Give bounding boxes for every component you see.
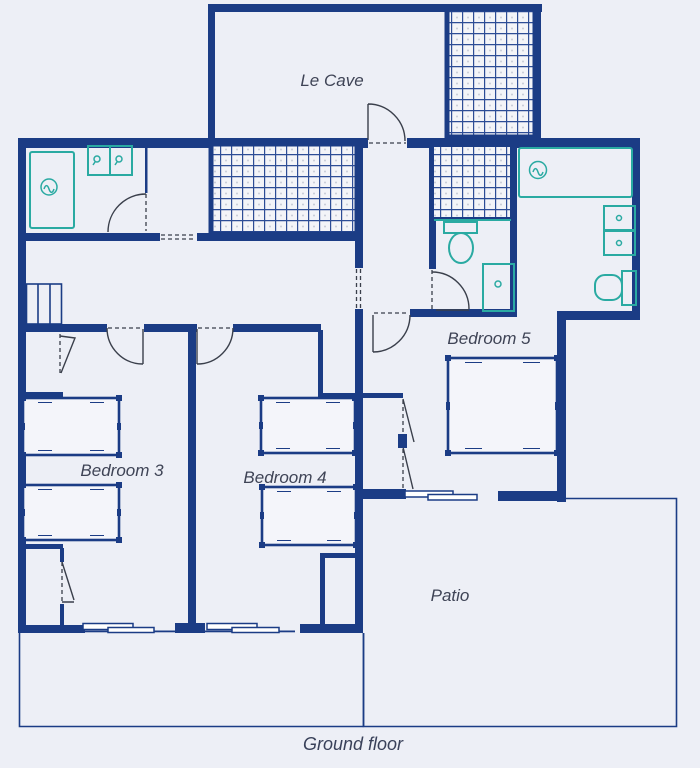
floor-plan: Le Cave Bedroom 3 Bedroom 4 Bedroom 5 Pa… [0,0,700,768]
room-label-patio: Patio [431,586,470,605]
vanity-drawers-icon [604,206,635,255]
bed-bedroom4-upper [258,395,358,456]
bed-bedroom4-lower [259,484,359,548]
bed-bedroom5 [445,355,560,456]
room-label-le-cave: Le Cave [300,71,363,90]
toilet-icon-right [595,271,636,305]
bed-bedroom3-upper [20,395,122,458]
window-bedroom5-b [428,495,477,501]
door-swing-bedroom4 [197,328,233,364]
door-swing-left-bathroom [108,194,146,232]
door-swing-shower-room [432,270,469,310]
double-sink-icon [88,146,132,175]
folding-door-closet-b3-top [60,334,75,373]
bathtub-icon-left [30,152,74,228]
tiled-area-landing [211,144,357,234]
window-bedroom3-b [108,628,154,633]
door-swing-bedroom3 [107,328,143,364]
tiled-floor-areas [211,9,535,234]
floor-caption: Ground floor [303,734,404,754]
tiled-area-cave [447,9,535,137]
terrace-outline [20,633,364,727]
window-bedroom4-b [232,628,279,633]
room-label-bedroom5: Bedroom 5 [447,329,531,348]
door-swing-le-cave [368,104,406,143]
door-swing-vestibule [373,313,410,352]
folding-door-closet-b3-bottom [62,562,74,602]
folding-door-closet-b5 [398,399,414,489]
tiled-area-shower-room [432,145,512,219]
beds [20,355,560,548]
stairs-icon [27,284,62,324]
opening-hall [161,235,196,239]
shower-cabinet-icon [483,264,514,311]
room-label-bedroom4: Bedroom 4 [243,468,326,487]
room-label-bedroom3: Bedroom 3 [80,461,164,480]
bed-bedroom3-lower [20,482,122,543]
toilet-icon-middle [444,222,477,263]
bathtub-icon-right [519,148,632,197]
opening-vestibule [357,269,361,308]
patio-outline [364,499,677,727]
